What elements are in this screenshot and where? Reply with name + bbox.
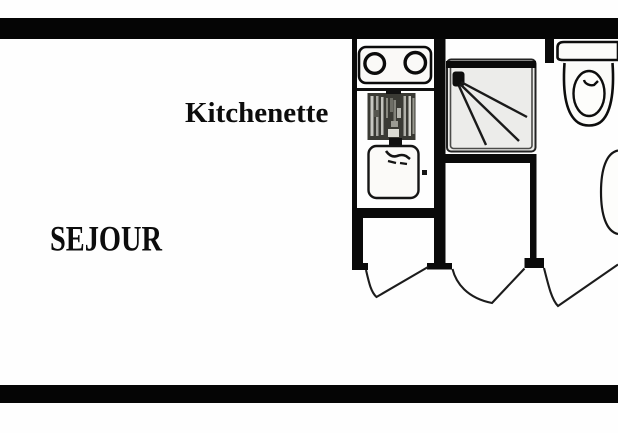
svg-text:Kitchenette: Kitchenette	[185, 97, 328, 129]
svg-text:SEJOUR: SEJOUR	[50, 219, 163, 259]
